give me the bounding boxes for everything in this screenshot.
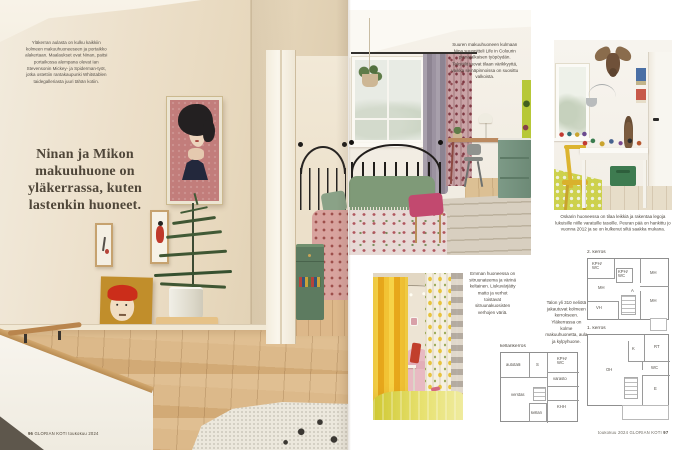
room-label-aula: A [631,289,634,293]
kids-desk-leg [582,160,585,208]
bedroom-doorway-view [296,56,348,336]
plan-wall [614,259,615,279]
plan-wall [529,353,530,377]
lego-clutter [581,136,647,148]
room-label-mh-3: MH [650,299,657,303]
work-chair [463,144,487,192]
wall-lamp-shade [586,98,597,107]
room-label-kph-wc-2: KPH/ WC [618,270,628,279]
floorplan-label-basement: kellarikerros [500,344,526,349]
door-leaf-edge [280,50,282,344]
floorplan-label-floor2: 2. kerros [587,250,606,255]
desk-plant [453,127,462,138]
plan-wall [588,278,615,279]
room-label-mh-1: MH [650,271,657,275]
door-handle [653,118,659,121]
plan-wall [588,301,618,302]
plan-wall [547,353,548,423]
chair-leg [477,161,483,187]
plan-wall [642,375,643,406]
plan-wall [547,400,579,401]
door-frame [266,50,296,344]
plan-staircase [621,295,636,315]
room-label-vh: VH [596,306,602,310]
portrait-lips [195,140,199,142]
plan-balcony [650,318,667,331]
plan-wall [640,291,641,319]
figure-eyes [116,304,118,306]
book-spines [299,277,321,287]
window-mullion [387,60,389,140]
plan-wall [642,375,670,376]
portrait-dress [182,158,208,180]
chair-leg [464,161,470,187]
chair-back [467,144,481,155]
right-page-footer: toukokuu 2024 GLORIAN KOTI 97 [548,431,668,435]
oskari-room-caption: Oskarin huoneessa on tilaa leikkiä ja ra… [554,214,672,234]
plan-terrace [622,405,669,420]
plan-wall [640,259,641,283]
plan-wall [642,361,643,370]
desk-lamp-shade [479,113,492,123]
foot-bench-leg [439,215,441,243]
right-footer-credit: toukokuu 2024 GLORIAN KOTI [598,431,662,435]
green-nightstand [296,244,324,320]
left-page-number: 96 [28,432,33,436]
plant-stem [192,203,194,291]
house-facts-text: Talon yli 310 neliötä jakautuvat kolmeen… [545,300,588,346]
room-label-wc: WC [651,366,658,370]
hanging-plant-pot [362,74,378,87]
emma-room-caption: Emman huoneessa on sitruunateema ja väri… [469,271,516,317]
room-label-garage: autotalli [506,363,520,367]
plan-wall [628,341,629,361]
right-page-number: 97 [663,431,668,435]
figure-mouth [119,314,126,316]
portrait-hair-side [203,120,215,142]
ombre-yellow-rug [373,391,463,420]
right-page: Suuren makuuhuoneen kulmaan Nina suunnit… [348,0,696,450]
room-label-sauna: S [536,363,539,367]
handrail-bracket [24,334,27,343]
master-bedroom-caption: Suuren makuuhuoneen kulmaan Nina suunnit… [451,42,519,81]
plant-pot [169,287,203,320]
kids-window [556,64,589,138]
magazine-spread: Yläkerran aulasta on kulku kaikkiin kolm… [0,0,696,450]
plan-wall [618,301,619,320]
bed-knob [342,142,347,147]
floorplan-floor1: K RT OH WC E [587,334,669,406]
small-framed-print-left [95,223,113,267]
room-label-workshop: verstas [511,393,525,397]
poster-red [636,89,646,103]
dresser-drawer-line [500,177,529,179]
room-label-storage: varasto [553,377,567,381]
portrait-painting [167,97,222,204]
bin-handle-slot [616,170,630,173]
room-label-oh: OH [606,368,612,372]
room-label-kph-wc-1: KPH/ WC [592,262,602,271]
left-page-footer: 96 GLORIAN KOTI toukokuu 2024 [28,432,99,436]
plan-wall [501,377,547,378]
bed-post-knob [349,140,354,145]
desk-lamp-stem [485,121,487,138]
print-red-dot [105,249,109,254]
floorplan-label-floor1: 1. kerros [587,326,606,331]
pink-throw [408,193,444,218]
room-label-cellar: kellari [531,411,542,415]
floorplan-basement: autotalli S KPH/ WC verstas varasto KHH … [500,352,578,422]
page-headline: Ninan ja Mikon makuuhuone on yläkerrassa… [26,146,144,214]
plan-wall [628,361,670,362]
spiderman-figure [156,226,164,243]
room-label-kph-wc: KPH/ WC [557,357,567,366]
foot-bench-leg [415,215,417,243]
kids-window-trees [559,91,586,135]
pink-wall-art [410,317,418,326]
kids-desk-leg [643,160,646,208]
handrail-bracket [58,331,61,340]
room-label-khh: KHH [557,405,566,409]
figure-head [158,221,163,226]
left-page-hallway-photo: Yläkerran aulasta on kulku kaikkiin kolm… [0,0,348,450]
plan-wall [644,335,645,361]
emma-room-photo [373,273,463,420]
desk-top [448,138,504,142]
plan-wall [640,286,669,287]
left-footer-credit: GLORIAN KOTI toukokuu 2024 [34,432,98,436]
master-bedroom-photo: Suuren makuuhuoneen kulmaan Nina suunnit… [349,10,531,255]
floral-bedspread [349,210,447,255]
nightstand-drawer-line [296,261,324,262]
room-label-mh-2: MH [598,286,605,290]
side-table-leg [413,368,415,392]
green-storage-bin [610,166,636,186]
chair-seat [464,157,483,161]
dresser-drawer-line [500,157,529,159]
portrait-neck [188,148,204,160]
poster-blue [636,68,646,85]
moose-snout [609,68,617,77]
bed-knob [298,142,303,147]
plan-staircase [533,387,546,401]
room-label-eteinen: E [654,387,657,391]
figure-red-hair [107,285,137,302]
floorplan-floor2: KPH/ WC KPH/ WC MH MH A MH VH [587,258,669,320]
room-label-rt: RT [654,345,660,349]
bed-post-knob [438,140,443,145]
plan-staircase [624,377,638,399]
room-label-kitchen: K [632,347,635,351]
plan-wall [547,386,579,387]
nightstand-knob [308,254,311,257]
window-transom [355,118,421,120]
plan-wall [547,372,579,373]
kids-desk-apron [580,153,648,160]
green-dresser [498,138,531,198]
oskari-room-photo [554,40,672,210]
intro-caption: Yläkerran aulasta on kulku kaikkiin kolm… [25,40,108,86]
